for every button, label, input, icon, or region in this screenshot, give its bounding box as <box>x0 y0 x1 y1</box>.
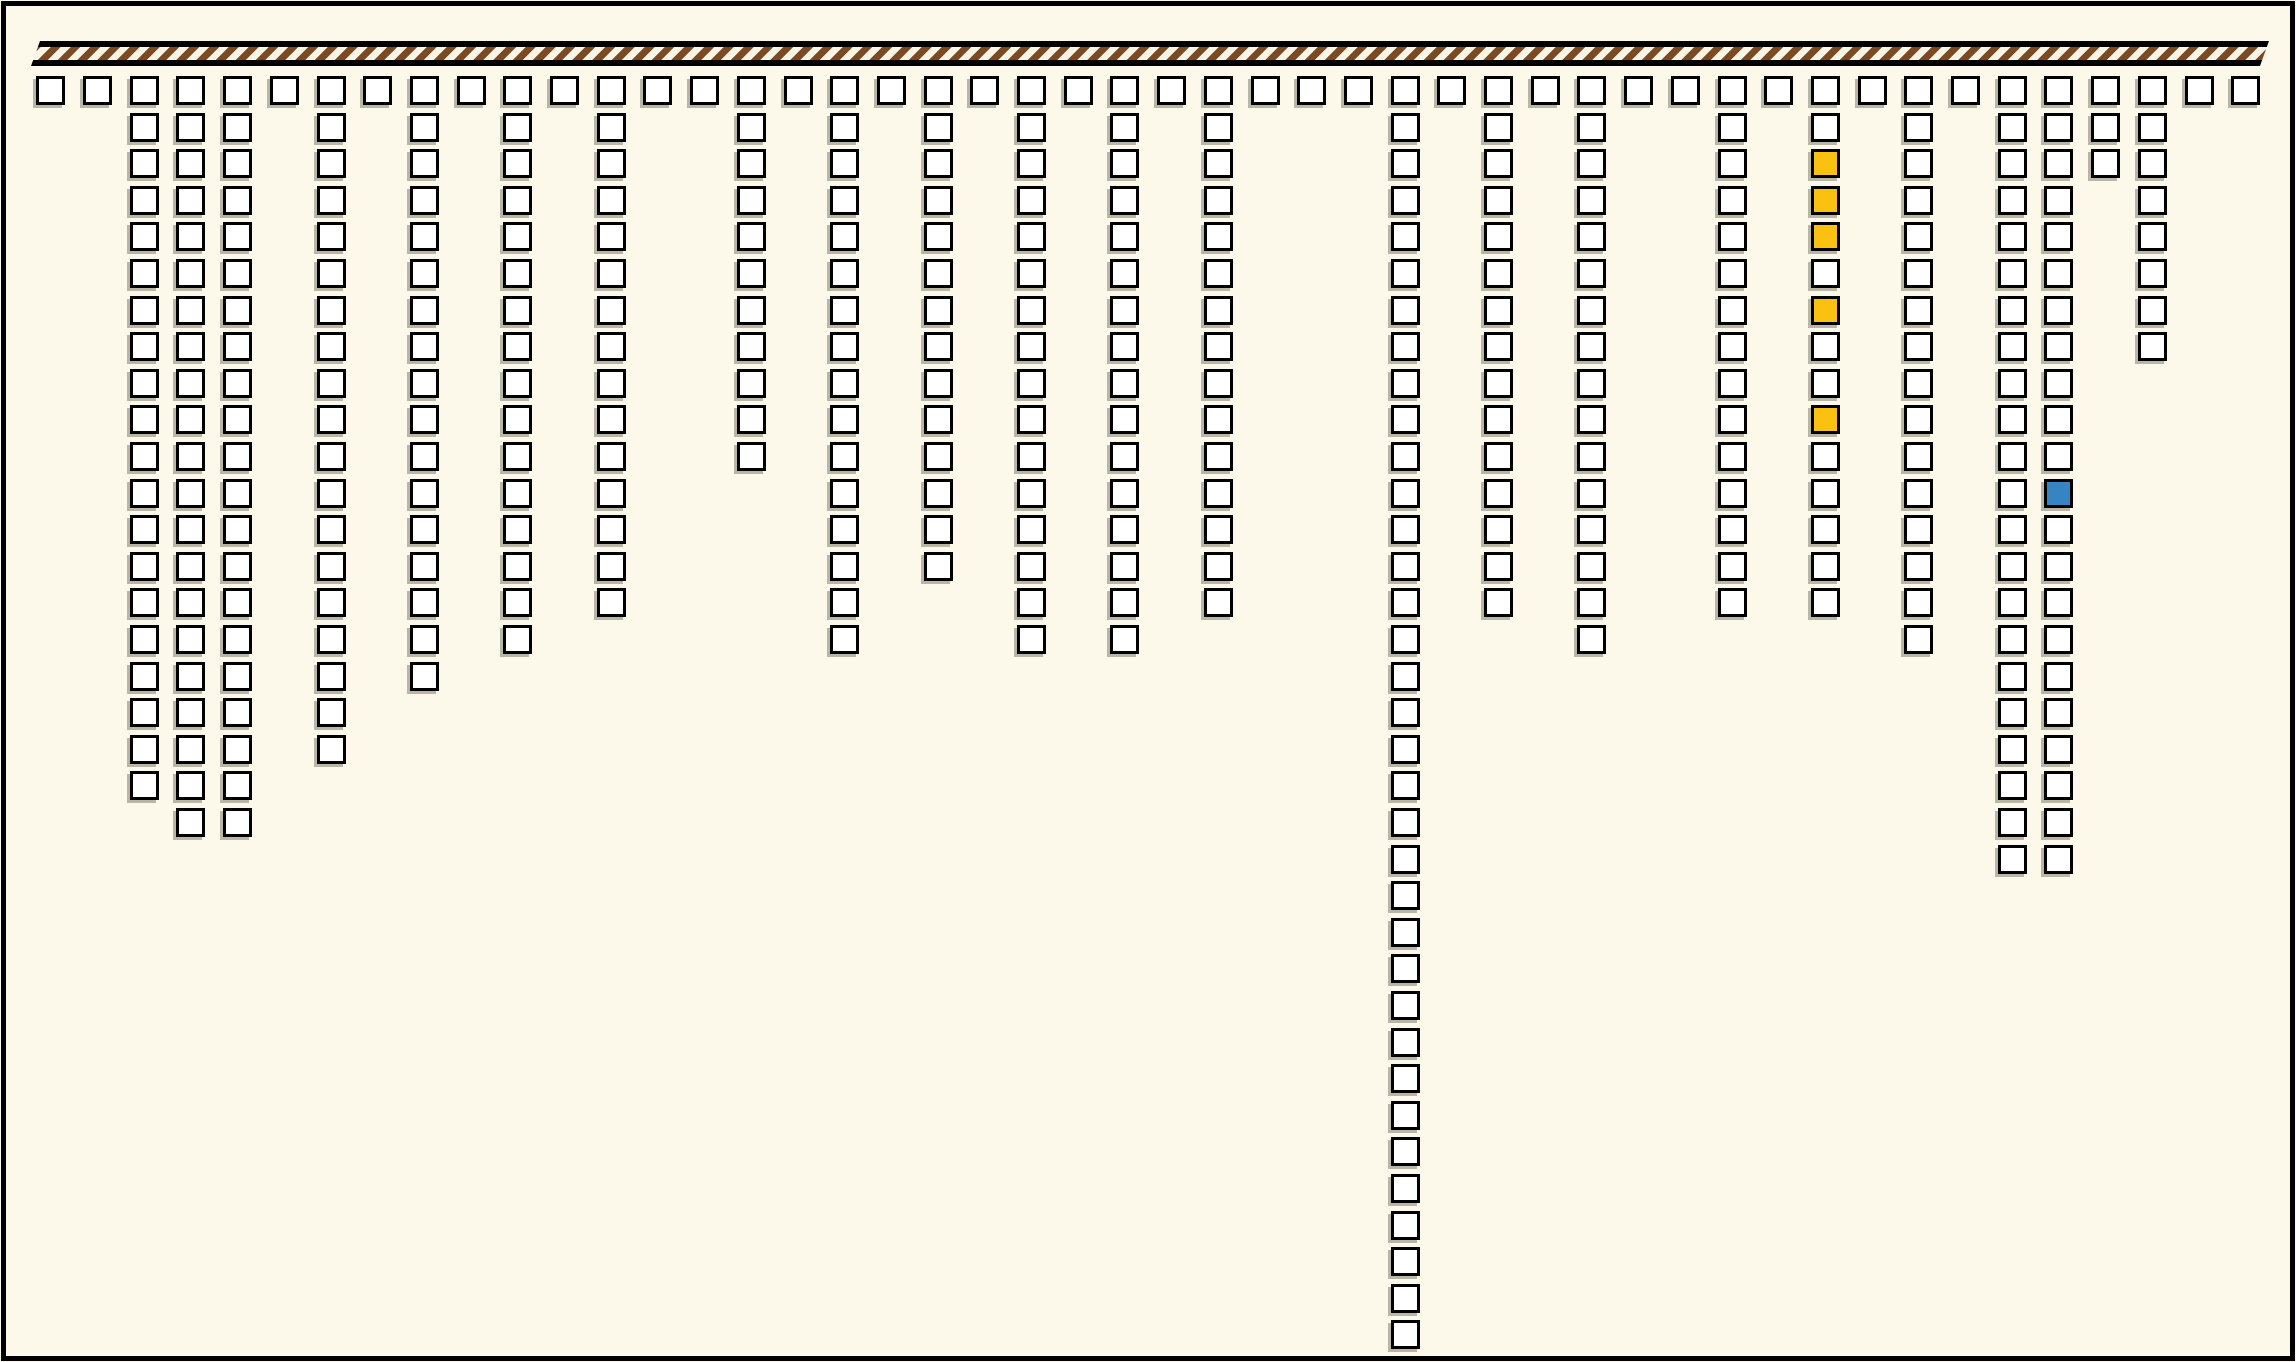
cell-c4-r14 <box>176 552 205 581</box>
cell-c32-r13 <box>1484 515 1513 544</box>
cell-c32-r15 <box>1484 588 1513 617</box>
cell-c5-r15 <box>223 588 252 617</box>
cell-c43-r18 <box>1998 698 2027 727</box>
cell-c3-r11 <box>130 442 159 471</box>
cell-c16-r8 <box>737 332 766 361</box>
cell-c30-r24 <box>1391 918 1420 947</box>
cell-c7-r15 <box>317 588 346 617</box>
cell-c34-r11 <box>1577 442 1606 471</box>
cell-c30-r1 <box>1391 76 1420 105</box>
cell-c3-r16 <box>130 625 159 654</box>
cell-c30-r32 <box>1391 1211 1420 1240</box>
cell-c18-r16 <box>830 625 859 654</box>
cell-c43-r19 <box>1998 735 2027 764</box>
cell-c44-r22 <box>2044 845 2073 874</box>
cell-c9-r9 <box>410 369 439 398</box>
cell-c32-r11 <box>1484 442 1513 471</box>
cell-c9-r16 <box>410 625 439 654</box>
cell-c24-r11 <box>1110 442 1139 471</box>
cell-c26-r2 <box>1204 113 1233 142</box>
cell-c41-r12 <box>1904 479 1933 508</box>
cell-c16-r4 <box>737 186 766 215</box>
cell-c11-r6 <box>503 259 532 288</box>
cell-c24-r9 <box>1110 369 1139 398</box>
cell-c39-r5 <box>1811 222 1840 251</box>
cell-c25-r1 <box>1157 76 1186 105</box>
cell-c26-r15 <box>1204 588 1233 617</box>
cell-c44-r6 <box>2044 259 2073 288</box>
cell-c3-r8 <box>130 332 159 361</box>
cell-c46-r4 <box>2138 186 2167 215</box>
cell-c34-r14 <box>1577 552 1606 581</box>
cell-c30-r27 <box>1391 1028 1420 1057</box>
cell-c20-r11 <box>924 442 953 471</box>
cell-c13-r12 <box>597 479 626 508</box>
cell-c44-r21 <box>2044 808 2073 837</box>
cell-c16-r6 <box>737 259 766 288</box>
cell-c14-r1 <box>643 76 672 105</box>
cell-c20-r4 <box>924 186 953 215</box>
cell-c13-r14 <box>597 552 626 581</box>
cell-c32-r12 <box>1484 479 1513 508</box>
cell-c5-r4 <box>223 186 252 215</box>
cell-c40-r1 <box>1858 76 1887 105</box>
cell-c11-r14 <box>503 552 532 581</box>
cell-c44-r13 <box>2044 515 2073 544</box>
cell-c34-r8 <box>1577 332 1606 361</box>
cell-c11-r11 <box>503 442 532 471</box>
cell-c30-r26 <box>1391 991 1420 1020</box>
cell-c9-r1 <box>410 76 439 105</box>
cell-c18-r2 <box>830 113 859 142</box>
cell-c6-r1 <box>270 76 299 105</box>
cell-c30-r20 <box>1391 771 1420 800</box>
cell-c30-r5 <box>1391 222 1420 251</box>
cell-c24-r13 <box>1110 515 1139 544</box>
cell-c3-r4 <box>130 186 159 215</box>
cell-c30-r10 <box>1391 405 1420 434</box>
cell-c41-r6 <box>1904 259 1933 288</box>
cell-c47-r1 <box>2185 76 2214 105</box>
cell-c4-r13 <box>176 515 205 544</box>
cell-c22-r4 <box>1017 186 1046 215</box>
cell-c39-r15 <box>1811 588 1840 617</box>
cell-c11-r5 <box>503 222 532 251</box>
cell-c30-r23 <box>1391 881 1420 910</box>
cell-c7-r7 <box>317 296 346 325</box>
cell-c37-r9 <box>1718 369 1747 398</box>
cell-c3-r5 <box>130 222 159 251</box>
cell-c46-r6 <box>2138 259 2167 288</box>
cell-c18-r7 <box>830 296 859 325</box>
cell-c30-r14 <box>1391 552 1420 581</box>
cell-c5-r3 <box>223 149 252 178</box>
cell-c32-r9 <box>1484 369 1513 398</box>
cell-c4-r4 <box>176 186 205 215</box>
cell-c30-r35 <box>1391 1320 1420 1349</box>
cell-c34-r13 <box>1577 515 1606 544</box>
cell-c30-r11 <box>1391 442 1420 471</box>
cell-c30-r30 <box>1391 1137 1420 1166</box>
cell-c37-r10 <box>1718 405 1747 434</box>
cell-c11-r7 <box>503 296 532 325</box>
cell-c3-r3 <box>130 149 159 178</box>
cell-c3-r7 <box>130 296 159 325</box>
cell-c32-r14 <box>1484 552 1513 581</box>
cell-c24-r7 <box>1110 296 1139 325</box>
cell-c41-r9 <box>1904 369 1933 398</box>
cell-c41-r16 <box>1904 625 1933 654</box>
cell-c32-r5 <box>1484 222 1513 251</box>
cell-c43-r22 <box>1998 845 2027 874</box>
cell-c7-r2 <box>317 113 346 142</box>
cell-c30-r31 <box>1391 1174 1420 1203</box>
cell-c44-r12 <box>2044 479 2073 508</box>
cell-c13-r7 <box>597 296 626 325</box>
cell-c11-r1 <box>503 76 532 105</box>
cell-c11-r4 <box>503 186 532 215</box>
cell-c5-r10 <box>223 405 252 434</box>
cell-c3-r1 <box>130 76 159 105</box>
cell-c39-r13 <box>1811 515 1840 544</box>
cell-c4-r11 <box>176 442 205 471</box>
cell-c9-r5 <box>410 222 439 251</box>
cell-c22-r12 <box>1017 479 1046 508</box>
cell-c34-r9 <box>1577 369 1606 398</box>
cell-c7-r16 <box>317 625 346 654</box>
cell-c22-r10 <box>1017 405 1046 434</box>
cell-c18-r13 <box>830 515 859 544</box>
cell-c43-r14 <box>1998 552 2027 581</box>
cell-c46-r3 <box>2138 149 2167 178</box>
cell-c44-r18 <box>2044 698 2073 727</box>
cell-c7-r1 <box>317 76 346 105</box>
cell-c4-r2 <box>176 113 205 142</box>
cell-c18-r5 <box>830 222 859 251</box>
cell-c44-r9 <box>2044 369 2073 398</box>
cell-c34-r5 <box>1577 222 1606 251</box>
cell-c7-r3 <box>317 149 346 178</box>
cell-c13-r8 <box>597 332 626 361</box>
cell-c42-r1 <box>1951 76 1980 105</box>
cell-c4-r6 <box>176 259 205 288</box>
cell-c5-r16 <box>223 625 252 654</box>
cell-c39-r14 <box>1811 552 1840 581</box>
cell-c39-r4 <box>1811 186 1840 215</box>
cell-c9-r17 <box>410 662 439 691</box>
cell-c24-r14 <box>1110 552 1139 581</box>
cell-c7-r5 <box>317 222 346 251</box>
cell-c39-r6 <box>1811 259 1840 288</box>
cell-c20-r8 <box>924 332 953 361</box>
cell-c44-r16 <box>2044 625 2073 654</box>
cell-c34-r6 <box>1577 259 1606 288</box>
cell-c3-r17 <box>130 662 159 691</box>
cell-c39-r2 <box>1811 113 1840 142</box>
hatched-top-bar <box>31 41 2269 66</box>
cell-c30-r19 <box>1391 735 1420 764</box>
cell-c44-r4 <box>2044 186 2073 215</box>
cell-c30-r2 <box>1391 113 1420 142</box>
cell-c9-r11 <box>410 442 439 471</box>
cell-c13-r1 <box>597 76 626 105</box>
cell-c20-r9 <box>924 369 953 398</box>
cell-c22-r14 <box>1017 552 1046 581</box>
cell-c5-r9 <box>223 369 252 398</box>
cell-c3-r18 <box>130 698 159 727</box>
cell-c18-r8 <box>830 332 859 361</box>
cell-c34-r16 <box>1577 625 1606 654</box>
cell-c24-r3 <box>1110 149 1139 178</box>
cell-c30-r33 <box>1391 1247 1420 1276</box>
cell-c20-r3 <box>924 149 953 178</box>
cell-c20-r5 <box>924 222 953 251</box>
cell-c11-r9 <box>503 369 532 398</box>
cell-c28-r1 <box>1297 76 1326 105</box>
cell-c7-r9 <box>317 369 346 398</box>
cell-c9-r6 <box>410 259 439 288</box>
cell-c9-r3 <box>410 149 439 178</box>
cell-c7-r13 <box>317 515 346 544</box>
cell-c18-r14 <box>830 552 859 581</box>
cell-c24-r15 <box>1110 588 1139 617</box>
cell-c37-r13 <box>1718 515 1747 544</box>
cell-c13-r5 <box>597 222 626 251</box>
cell-c26-r5 <box>1204 222 1233 251</box>
cell-c46-r1 <box>2138 76 2167 105</box>
cell-c44-r15 <box>2044 588 2073 617</box>
cell-c26-r6 <box>1204 259 1233 288</box>
cell-c41-r1 <box>1904 76 1933 105</box>
cell-c3-r10 <box>130 405 159 434</box>
cell-c24-r16 <box>1110 625 1139 654</box>
cell-c41-r2 <box>1904 113 1933 142</box>
cell-c26-r11 <box>1204 442 1233 471</box>
cell-c43-r10 <box>1998 405 2027 434</box>
cell-c24-r2 <box>1110 113 1139 142</box>
cell-c5-r7 <box>223 296 252 325</box>
cell-c26-r3 <box>1204 149 1233 178</box>
cell-c32-r4 <box>1484 186 1513 215</box>
cell-c11-r2 <box>503 113 532 142</box>
cell-c18-r11 <box>830 442 859 471</box>
cell-c4-r7 <box>176 296 205 325</box>
cell-c11-r12 <box>503 479 532 508</box>
cell-c4-r10 <box>176 405 205 434</box>
cell-c9-r2 <box>410 113 439 142</box>
cell-c18-r15 <box>830 588 859 617</box>
cell-c11-r16 <box>503 625 532 654</box>
cell-c41-r8 <box>1904 332 1933 361</box>
cell-c44-r19 <box>2044 735 2073 764</box>
cell-c43-r17 <box>1998 662 2027 691</box>
cell-c43-r12 <box>1998 479 2027 508</box>
cell-c22-r13 <box>1017 515 1046 544</box>
cell-c5-r20 <box>223 771 252 800</box>
cell-c20-r1 <box>924 76 953 105</box>
cell-c18-r6 <box>830 259 859 288</box>
cell-c18-r10 <box>830 405 859 434</box>
cell-c41-r13 <box>1904 515 1933 544</box>
cell-c19-r1 <box>877 76 906 105</box>
cell-c46-r5 <box>2138 222 2167 251</box>
poster-canvas <box>0 0 2296 1362</box>
cell-c32-r3 <box>1484 149 1513 178</box>
cell-c43-r15 <box>1998 588 2027 617</box>
cell-c37-r15 <box>1718 588 1747 617</box>
cell-c16-r2 <box>737 113 766 142</box>
cell-c44-r7 <box>2044 296 2073 325</box>
cell-c45-r3 <box>2091 149 2120 178</box>
cell-c8-r1 <box>363 76 392 105</box>
cell-c45-r1 <box>2091 76 2120 105</box>
cell-c5-r12 <box>223 479 252 508</box>
cell-c32-r7 <box>1484 296 1513 325</box>
cell-c4-r8 <box>176 332 205 361</box>
cell-c20-r10 <box>924 405 953 434</box>
cell-c18-r4 <box>830 186 859 215</box>
cell-c7-r6 <box>317 259 346 288</box>
cell-c22-r2 <box>1017 113 1046 142</box>
cell-c39-r11 <box>1811 442 1840 471</box>
cell-c30-r6 <box>1391 259 1420 288</box>
cell-c37-r1 <box>1718 76 1747 105</box>
cell-c34-r3 <box>1577 149 1606 178</box>
cell-c17-r1 <box>784 76 813 105</box>
cell-c32-r10 <box>1484 405 1513 434</box>
cell-c26-r12 <box>1204 479 1233 508</box>
cell-c22-r6 <box>1017 259 1046 288</box>
cell-c11-r13 <box>503 515 532 544</box>
cell-c4-r18 <box>176 698 205 727</box>
cell-c46-r2 <box>2138 113 2167 142</box>
cell-c43-r4 <box>1998 186 2027 215</box>
cell-c3-r14 <box>130 552 159 581</box>
cell-c12-r1 <box>550 76 579 105</box>
cell-c4-r12 <box>176 479 205 508</box>
cell-c32-r6 <box>1484 259 1513 288</box>
cell-c9-r8 <box>410 332 439 361</box>
cell-c30-r34 <box>1391 1284 1420 1313</box>
cell-c7-r4 <box>317 186 346 215</box>
cell-c16-r10 <box>737 405 766 434</box>
cell-c5-r17 <box>223 662 252 691</box>
cell-c30-r12 <box>1391 479 1420 508</box>
cell-c37-r8 <box>1718 332 1747 361</box>
cell-c3-r12 <box>130 479 159 508</box>
cell-c43-r13 <box>1998 515 2027 544</box>
cell-c20-r7 <box>924 296 953 325</box>
cell-c3-r2 <box>130 113 159 142</box>
cell-c13-r11 <box>597 442 626 471</box>
cell-c13-r4 <box>597 186 626 215</box>
cell-c32-r2 <box>1484 113 1513 142</box>
cell-c41-r7 <box>1904 296 1933 325</box>
cell-c26-r8 <box>1204 332 1233 361</box>
cell-c46-r7 <box>2138 296 2167 325</box>
cell-c26-r14 <box>1204 552 1233 581</box>
cell-c26-r9 <box>1204 369 1233 398</box>
cell-c26-r10 <box>1204 405 1233 434</box>
cell-c18-r9 <box>830 369 859 398</box>
cell-c13-r15 <box>597 588 626 617</box>
cell-c7-r11 <box>317 442 346 471</box>
cell-c5-r18 <box>223 698 252 727</box>
cell-c48-r1 <box>2231 76 2260 105</box>
cell-c39-r8 <box>1811 332 1840 361</box>
cell-c44-r14 <box>2044 552 2073 581</box>
cell-c9-r12 <box>410 479 439 508</box>
cell-c9-r10 <box>410 405 439 434</box>
cell-c7-r17 <box>317 662 346 691</box>
cell-c45-r2 <box>2091 113 2120 142</box>
cell-c44-r3 <box>2044 149 2073 178</box>
cell-c30-r22 <box>1391 845 1420 874</box>
cell-c44-r8 <box>2044 332 2073 361</box>
cell-c22-r7 <box>1017 296 1046 325</box>
cell-c4-r9 <box>176 369 205 398</box>
cell-c4-r19 <box>176 735 205 764</box>
cell-c44-r1 <box>2044 76 2073 105</box>
cell-c13-r13 <box>597 515 626 544</box>
cell-c11-r8 <box>503 332 532 361</box>
cell-c10-r1 <box>457 76 486 105</box>
cell-c44-r10 <box>2044 405 2073 434</box>
cell-c20-r2 <box>924 113 953 142</box>
cell-c37-r4 <box>1718 186 1747 215</box>
cell-c5-r5 <box>223 222 252 251</box>
cell-c22-r3 <box>1017 149 1046 178</box>
cell-c31-r1 <box>1437 76 1466 105</box>
cell-c44-r2 <box>2044 113 2073 142</box>
cell-c5-r1 <box>223 76 252 105</box>
cell-c16-r1 <box>737 76 766 105</box>
cell-c22-r15 <box>1017 588 1046 617</box>
cell-c30-r18 <box>1391 698 1420 727</box>
cell-c13-r3 <box>597 149 626 178</box>
cell-c30-r15 <box>1391 588 1420 617</box>
cell-c3-r19 <box>130 735 159 764</box>
cell-c30-r17 <box>1391 662 1420 691</box>
cell-c5-r8 <box>223 332 252 361</box>
cell-c41-r10 <box>1904 405 1933 434</box>
cell-c26-r13 <box>1204 515 1233 544</box>
cell-c43-r16 <box>1998 625 2027 654</box>
cell-c13-r6 <box>597 259 626 288</box>
cell-c26-r7 <box>1204 296 1233 325</box>
cell-c44-r17 <box>2044 662 2073 691</box>
cell-c22-r9 <box>1017 369 1046 398</box>
cell-c3-r20 <box>130 771 159 800</box>
cell-c20-r13 <box>924 515 953 544</box>
cell-c41-r3 <box>1904 149 1933 178</box>
cell-c24-r8 <box>1110 332 1139 361</box>
cell-c4-r15 <box>176 588 205 617</box>
cell-c34-r7 <box>1577 296 1606 325</box>
cell-c20-r12 <box>924 479 953 508</box>
cell-c9-r14 <box>410 552 439 581</box>
cell-c16-r5 <box>737 222 766 251</box>
cell-c43-r6 <box>1998 259 2027 288</box>
cell-c21-r1 <box>970 76 999 105</box>
cell-c11-r10 <box>503 405 532 434</box>
cell-c24-r1 <box>1110 76 1139 105</box>
cell-c7-r8 <box>317 332 346 361</box>
cell-c1-r1 <box>36 76 65 105</box>
cell-c30-r8 <box>1391 332 1420 361</box>
cell-c24-r4 <box>1110 186 1139 215</box>
cell-c7-r18 <box>317 698 346 727</box>
